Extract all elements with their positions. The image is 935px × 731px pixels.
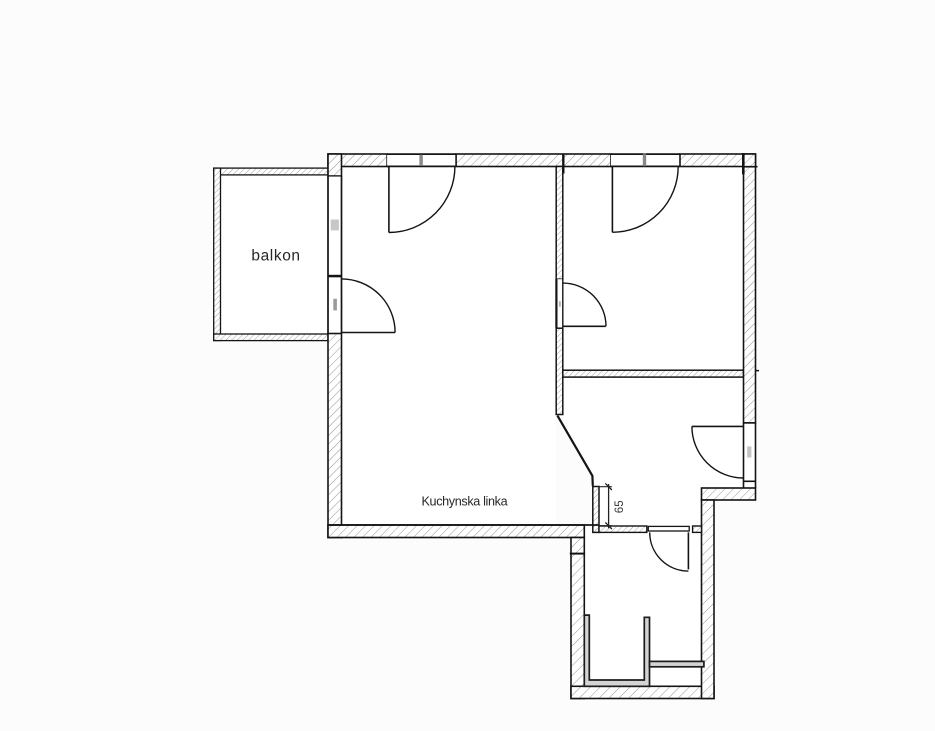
svg-text:Kuchynska linka: Kuchynska linka [421, 494, 507, 508]
svg-text:balkon: balkon [251, 247, 300, 264]
svg-text:65: 65 [614, 500, 626, 513]
